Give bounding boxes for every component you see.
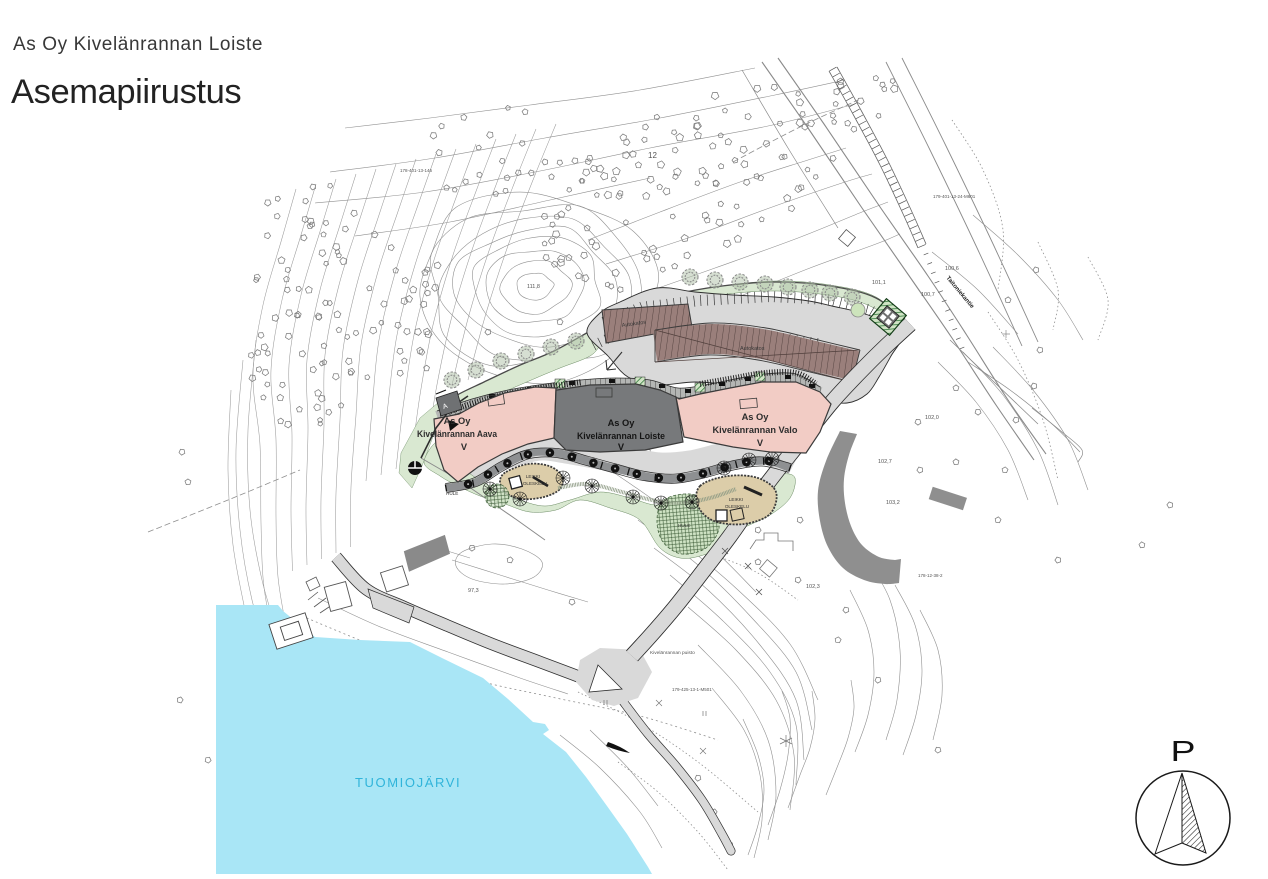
- svg-text:100,7: 100,7: [921, 292, 935, 298]
- svg-text:Kivelänrannan Loiste: Kivelänrannan Loiste: [577, 431, 665, 441]
- svg-text:Kivelänrannan Aava: Kivelänrannan Aava: [417, 429, 498, 439]
- svg-text:HULE: HULE: [678, 523, 690, 528]
- svg-text:P: P: [1171, 736, 1196, 768]
- svg-text:Autokatos: Autokatos: [740, 346, 765, 352]
- svg-text:OLESKELU: OLESKELU: [725, 504, 749, 509]
- svg-text:V: V: [618, 442, 625, 452]
- svg-text:97,3: 97,3: [468, 588, 479, 594]
- svg-text:TUOMIOJÄRVI: TUOMIOJÄRVI: [355, 775, 461, 790]
- svg-text:Kivelänrannan puisto: Kivelänrannan puisto: [650, 650, 695, 656]
- svg-text:178-401-13-146: 178-401-13-146: [400, 168, 433, 173]
- svg-text:100,6: 100,6: [945, 266, 959, 272]
- svg-text:LEIKKI: LEIKKI: [526, 474, 540, 479]
- svg-text:179-425-13-1-M501: 179-425-13-1-M501: [672, 687, 712, 692]
- svg-text:Kivelänrannan Valo: Kivelänrannan Valo: [713, 425, 798, 435]
- svg-text:103,2: 103,2: [886, 500, 900, 506]
- svg-text:12: 12: [648, 151, 657, 160]
- svg-text:102,0: 102,0: [925, 415, 939, 421]
- svg-text:Asemapiirustus: Asemapiirustus: [11, 73, 241, 111]
- svg-text:LEIKKI: LEIKKI: [729, 497, 743, 502]
- svg-text:As Oy: As Oy: [444, 416, 472, 426]
- svg-text:111,8: 111,8: [527, 284, 540, 290]
- svg-text:179-401-13-24-M601: 179-401-13-24-M601: [933, 194, 976, 199]
- svg-text:As Oy Kivelänrannan Loiste: As Oy Kivelänrannan Loiste: [13, 34, 263, 55]
- svg-text:102,7: 102,7: [878, 459, 892, 465]
- svg-text:178-12-38-2: 178-12-38-2: [918, 573, 943, 578]
- svg-text:V: V: [461, 442, 468, 452]
- svg-text:As Oy: As Oy: [608, 418, 636, 428]
- svg-text:V: V: [757, 438, 764, 448]
- svg-text:HULE: HULE: [446, 491, 458, 496]
- svg-text:101,1: 101,1: [872, 280, 886, 286]
- svg-text:102,3: 102,3: [806, 584, 820, 590]
- svg-text:OLESKELU: OLESKELU: [523, 481, 547, 486]
- svg-text:As Oy: As Oy: [742, 412, 770, 422]
